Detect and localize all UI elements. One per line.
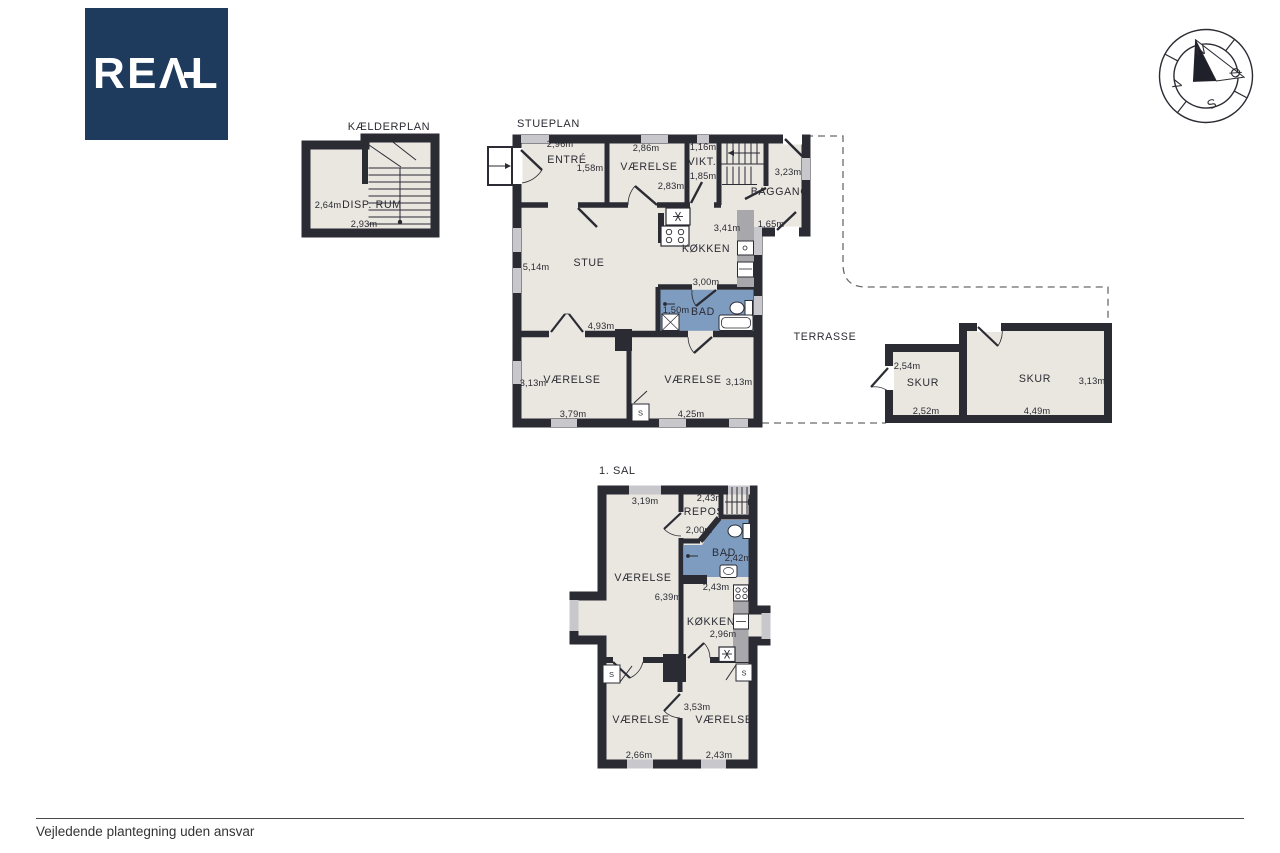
terrasse-label: TERRASSE xyxy=(794,331,857,343)
stue-dim-side: 5,14m xyxy=(523,262,550,272)
footer-divider xyxy=(36,818,1244,819)
disp-rum-length: 2,93m xyxy=(351,219,378,229)
sink-icon xyxy=(738,241,754,255)
kaelderplan-title: KÆLDERPLAN xyxy=(348,121,430,133)
skur-right-dim-bottom: 4,49m xyxy=(1024,406,1051,416)
koekken-label: KØKKEN xyxy=(682,243,730,255)
closet-label: S xyxy=(638,409,643,418)
skur-left-label: SKUR xyxy=(907,377,939,389)
entre-dim-side: 1,58m xyxy=(577,163,604,173)
floorplan-page: REΛL N Ø S V KÆLDERPLAN xyxy=(0,0,1280,853)
vikt-dim-side: 1,85m xyxy=(690,171,717,181)
terrasse-outline xyxy=(806,136,1108,321)
oven-icon xyxy=(738,262,754,277)
vaerelse-br-label: VÆRELSE xyxy=(695,714,752,726)
bad-label: BAD xyxy=(691,306,715,318)
vaerelse-top-label: VÆRELSE xyxy=(620,161,677,173)
vaerelse-top-dim-bottom: 2,83m xyxy=(658,181,685,191)
closet-label-1sal-left: S xyxy=(609,670,614,679)
washing-machine-icon xyxy=(662,314,679,331)
vaerelse-br-dim-side: 3,53m xyxy=(684,702,711,712)
koekken-1sal-label: KØKKEN xyxy=(687,616,735,628)
entrance-steps-icon xyxy=(488,147,512,185)
compass-rose: N Ø S V xyxy=(1151,21,1261,131)
fridge-icon-1sal xyxy=(719,647,735,662)
vaerelse-1sal-dim-top: 3,19m xyxy=(632,496,659,506)
washbasin-icon-1sal xyxy=(720,565,737,578)
vaerelse-right-dim-bottom: 4,25m xyxy=(678,409,705,419)
vaerelse-right-dim-side: 3,13m xyxy=(726,377,753,387)
stueplan-title: STUEPLAN xyxy=(517,118,580,130)
bad-dim: 1,50m xyxy=(663,305,690,315)
baggang-dim-door: 1,65m xyxy=(758,219,785,229)
skur: 2,54m SKUR 2,52m SKUR 3,13m 4,49m xyxy=(871,322,1108,419)
vaerelse-top-dim-top: 2,86m xyxy=(633,143,660,153)
foerste-sal-title: 1. SAL xyxy=(599,465,636,477)
vaerelse-1sal-dim-side: 6,39m xyxy=(655,592,682,602)
bathtub-icon xyxy=(719,315,753,331)
toilet-icon-1sal xyxy=(728,524,751,539)
koekken-1sal-dim-side: 2,96m xyxy=(710,629,737,639)
skur-left-dim-bottom: 2,52m xyxy=(913,406,940,416)
vikt-dim-top: 1,16m xyxy=(690,142,717,152)
koekken-1sal-dim-top: 2,43m xyxy=(703,582,730,592)
floorplan-drawing: N Ø S V KÆLDERPLAN 2,64m DISP. RUM xyxy=(0,0,1280,853)
vaerelse-bl-dim-bottom: 2,66m xyxy=(626,750,653,760)
vaerelse-br-dim-bottom: 2,43m xyxy=(706,750,733,760)
closet-label-1sal-right: S xyxy=(741,669,746,678)
stove-icon-1sal xyxy=(734,585,749,601)
skur-right-dim-side: 3,13m xyxy=(1079,376,1106,386)
vaerelse-right-label: VÆRELSE xyxy=(664,374,721,386)
baggang-label: BAGGANG xyxy=(751,186,809,198)
kaelderplan: KÆLDERPLAN 2,64m DISP. RUM 2,93m xyxy=(306,121,435,233)
skur-left-dim-side: 2,54m xyxy=(894,361,921,371)
koekken-dim-bottom: 3,00m xyxy=(693,277,720,287)
stue-dim-bottom: 4,93m xyxy=(588,321,615,331)
vaerelse-1sal-label: VÆRELSE xyxy=(614,572,671,584)
entre-dim-top: 2,96m xyxy=(547,139,574,149)
vikt-label: VIKT. xyxy=(688,156,717,168)
disp-rum-width: 2,64m xyxy=(315,200,342,210)
bad-1sal-dim: 2,42m xyxy=(725,553,752,563)
toilet-icon xyxy=(730,301,753,316)
skur-right-label: SKUR xyxy=(1019,373,1051,385)
vaerelse-bl-label: VÆRELSE xyxy=(612,714,669,726)
fridge-icon xyxy=(666,208,690,225)
compass-south: S xyxy=(1205,95,1219,112)
stue-label: STUE xyxy=(573,257,604,269)
vaerelse-left-label: VÆRELSE xyxy=(543,374,600,386)
foerste-sal: 1. SAL xyxy=(570,465,771,769)
footer-disclaimer: Vejledende plantegning uden ansvar xyxy=(36,824,254,839)
disp-rum-label: DISP. RUM xyxy=(342,199,402,211)
sink-icon-1sal xyxy=(734,614,749,629)
baggang-dim-side: 3,23m xyxy=(775,167,802,177)
repos-dim: 2,00m xyxy=(686,525,713,535)
repos-dim-top: 2,43m xyxy=(697,493,724,503)
compass-west: V xyxy=(1169,78,1186,91)
koekken-dim-side: 3,41m xyxy=(714,223,741,233)
repos-label: REPOS xyxy=(684,506,725,518)
vaerelse-left-dim-bottom: 3,79m xyxy=(560,409,587,419)
